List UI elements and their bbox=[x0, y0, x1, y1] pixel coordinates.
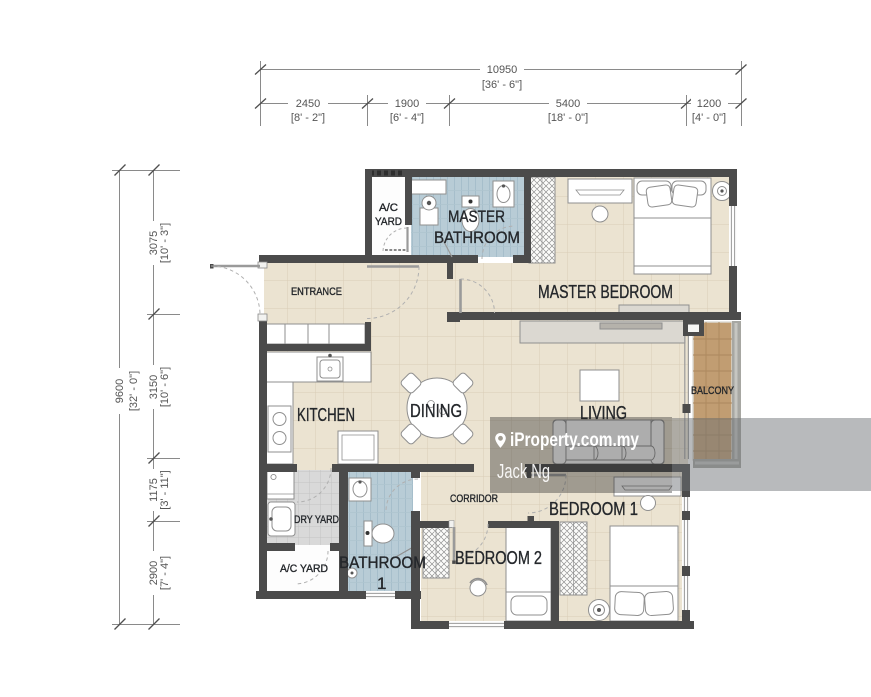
svg-text:iProperty.com.my: iProperty.com.my bbox=[510, 429, 639, 451]
svg-text:DRY YARD: DRY YARD bbox=[294, 514, 339, 526]
svg-text:[36' - 6"]: [36' - 6"] bbox=[482, 79, 522, 91]
svg-text:[10' - 3"]: [10' - 3"] bbox=[159, 223, 171, 263]
svg-text:9600: 9600 bbox=[114, 379, 126, 403]
svg-text:KITCHEN: KITCHEN bbox=[297, 405, 355, 425]
svg-text:[18' - 0"]: [18' - 0"] bbox=[548, 112, 588, 124]
svg-text:BATHROOM: BATHROOM bbox=[434, 228, 520, 247]
svg-text:DINING: DINING bbox=[410, 401, 462, 421]
svg-text:[6' - 4"]: [6' - 4"] bbox=[390, 112, 424, 124]
svg-text:10950: 10950 bbox=[487, 64, 518, 76]
svg-text:2450: 2450 bbox=[296, 98, 320, 110]
svg-text:1: 1 bbox=[377, 574, 386, 593]
svg-text:Jack Ng: Jack Ng bbox=[497, 461, 550, 483]
svg-text:1200: 1200 bbox=[697, 98, 721, 110]
svg-text:BEDROOM 1: BEDROOM 1 bbox=[549, 499, 638, 519]
svg-text:[8' - 2"]: [8' - 2"] bbox=[291, 112, 325, 124]
svg-text:[10' - 6"]: [10' - 6"] bbox=[159, 367, 171, 407]
svg-text:ENTRANCE: ENTRANCE bbox=[291, 286, 342, 298]
svg-text:MASTER: MASTER bbox=[448, 207, 505, 226]
svg-text:[32' - 0"]: [32' - 0"] bbox=[128, 371, 140, 411]
svg-text:[4' - 0"]: [4' - 0"] bbox=[692, 112, 726, 124]
svg-text:BALCONY: BALCONY bbox=[691, 385, 735, 397]
svg-text:5400: 5400 bbox=[556, 98, 580, 110]
svg-text:1900: 1900 bbox=[395, 98, 419, 110]
svg-text:YARD: YARD bbox=[375, 216, 402, 228]
svg-text:CORRIDOR: CORRIDOR bbox=[450, 493, 498, 505]
svg-text:[7' - 4"]: [7' - 4"] bbox=[159, 556, 171, 590]
svg-text:MASTER BEDROOM: MASTER BEDROOM bbox=[538, 282, 673, 302]
svg-text:[3' - 11"]: [3' - 11"] bbox=[159, 470, 171, 509]
svg-text:BATHROOM: BATHROOM bbox=[339, 553, 426, 572]
svg-text:A/C YARD: A/C YARD bbox=[280, 563, 328, 575]
svg-text:A/C: A/C bbox=[379, 202, 398, 214]
svg-text:BEDROOM 2: BEDROOM 2 bbox=[455, 548, 542, 568]
